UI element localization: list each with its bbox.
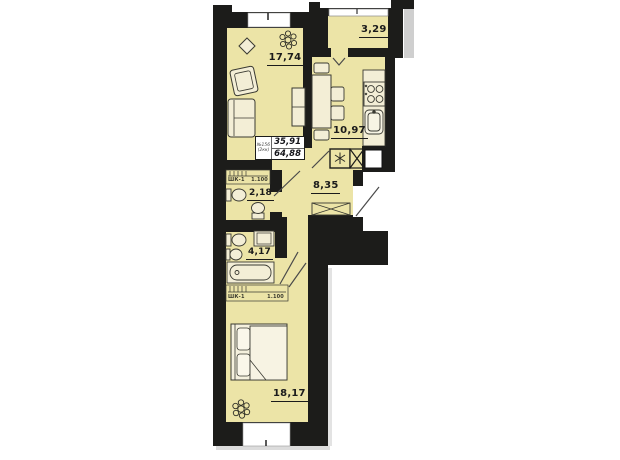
armchair (230, 66, 259, 96)
sofa (228, 99, 255, 137)
chair (314, 63, 329, 73)
fridge (365, 150, 382, 168)
wall-wc-bath (213, 220, 287, 232)
floor-plan-drawing (0, 0, 620, 460)
wall-nub-center (309, 2, 320, 13)
room-label-hallway: 8,35 (311, 180, 339, 194)
wc-right-wall-bottom (270, 212, 282, 220)
bottom-shadow (216, 446, 330, 450)
wall-nub-left (213, 5, 232, 13)
unit-id: №156 (2кк) (256, 137, 272, 159)
room-label-balcony: 3,29 (359, 24, 387, 38)
neighbor-block (404, 9, 414, 58)
room-label-kitchen: 10,97 (331, 125, 363, 139)
living-door-gap (272, 160, 303, 170)
unit-total-area: 64,88 (272, 149, 304, 160)
room-label-bedroom: 18,17 (271, 388, 303, 402)
wc-sink (226, 189, 246, 201)
bed (231, 324, 287, 380)
right-shadow (328, 268, 332, 446)
washing-machine-icon (330, 149, 350, 168)
chair (314, 130, 329, 140)
wall-nub-right (391, 0, 414, 9)
wall-under-hall (308, 215, 353, 231)
chair (331, 106, 344, 120)
unit-info-box: №156 (2кк) 35,91 64,88 (255, 136, 305, 160)
blanket (250, 326, 287, 380)
bedroom-window (243, 423, 290, 446)
unit-areas: 35,91 64,88 (272, 137, 304, 159)
closet-label-bottom: ШК-11.100 (228, 294, 284, 300)
unit-type: (2кк) (258, 148, 270, 154)
corridor-area (287, 215, 308, 302)
pillow (237, 328, 250, 350)
living-window (248, 13, 290, 27)
closet-label-top: ШК-11.100 (228, 177, 268, 183)
wc-toilet (252, 203, 265, 220)
room-label-living: 17,74 (266, 52, 304, 66)
chair (331, 87, 344, 101)
room-label-bathroom: 4,17 (246, 246, 272, 260)
room-label-wc: 2,18 (247, 187, 273, 201)
bath-toilet (226, 249, 242, 260)
kitchen-sink (365, 110, 383, 134)
ventilation-box (350, 149, 364, 168)
wardrobe (292, 88, 305, 126)
bath-sink (226, 234, 246, 246)
floor-plan: 17,74 3,29 10,97 8,35 2,18 4,17 18,17 ШК… (0, 0, 620, 460)
unit-living-area: 35,91 (272, 137, 304, 149)
balcony-glazing (329, 9, 388, 16)
balcony-door-gap (331, 48, 348, 58)
pillow (237, 354, 250, 376)
bathtub (227, 262, 274, 283)
washer (254, 231, 274, 246)
bathroom-right-wall (275, 232, 287, 258)
